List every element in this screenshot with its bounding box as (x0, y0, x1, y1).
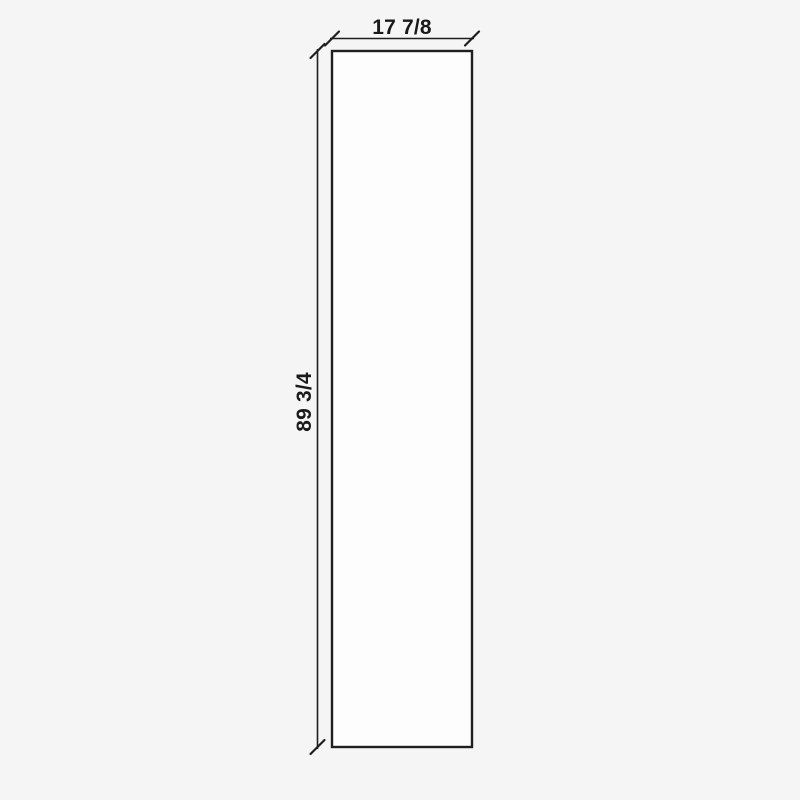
height-dimension: 89 3/4 (293, 44, 325, 754)
width-dimension-label: 17 7/8 (372, 16, 432, 39)
width-dimension: 17 7/8 (325, 16, 479, 46)
drawing-canvas: 17 7/8 89 3/4 (0, 0, 800, 800)
height-dimension-label: 89 3/4 (293, 372, 316, 432)
panel-outline (332, 51, 472, 747)
panel-dimension-drawing: 17 7/8 89 3/4 (0, 0, 800, 800)
